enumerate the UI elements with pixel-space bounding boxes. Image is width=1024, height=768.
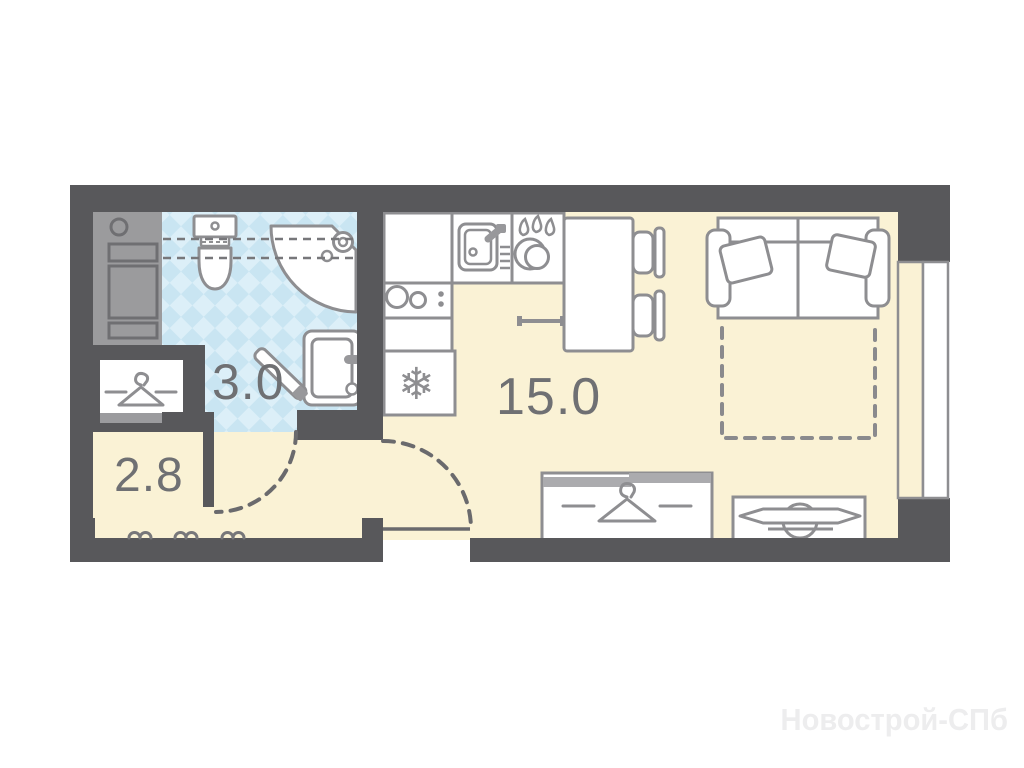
counter-lower-module — [384, 318, 452, 351]
ventilation-shaft — [93, 212, 162, 347]
wall-bottom-left — [70, 538, 383, 562]
plate-icon — [526, 246, 549, 269]
wall-top — [70, 185, 950, 212]
wall-right-bottom — [898, 498, 950, 562]
watermark: Новострой-СПб — [781, 702, 1008, 738]
wardrobe — [542, 473, 712, 543]
toilet-icon — [194, 216, 236, 289]
wall-bathroom-bottom-right — [297, 410, 383, 440]
washbasin-icon — [304, 331, 361, 405]
sofa-bed — [707, 218, 889, 318]
window-sill — [898, 262, 923, 498]
counter-corner — [384, 213, 452, 283]
chair — [633, 291, 664, 340]
bathroom-area-label: 3.0 — [212, 357, 285, 407]
dining-table — [564, 218, 633, 351]
floor-plan: ❄ — [0, 0, 1024, 768]
window-frame — [923, 262, 948, 498]
shower-drain-icon — [322, 251, 332, 261]
window — [898, 262, 948, 498]
wall-left — [70, 185, 93, 540]
bathroom-door-jamb — [203, 412, 214, 507]
hallway-area-label: 2.8 — [114, 452, 184, 500]
pillow-icon — [826, 234, 877, 278]
chair — [633, 228, 664, 277]
wall-right-top — [898, 185, 950, 262]
snowflake-icon: ❄ — [398, 359, 435, 410]
wall-bathroom-kitchen — [357, 212, 383, 440]
living-kitchen-area-label: 15.0 — [496, 371, 601, 423]
wall-bathroom-bottom-left — [162, 412, 203, 432]
wall-bottom-right — [470, 538, 950, 562]
tv-stand — [733, 497, 865, 543]
